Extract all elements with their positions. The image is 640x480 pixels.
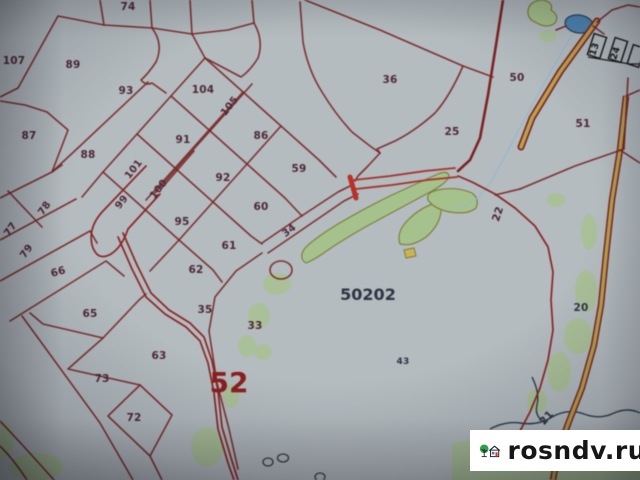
cadastral-map: 52 50202 7410789931041058687889159921011… <box>0 0 640 480</box>
parcel-label: 89 <box>65 59 80 71</box>
zone-code: 50202 <box>340 285 396 304</box>
parcel-label: 61 <box>221 240 236 252</box>
parcel-label: 73 <box>94 373 109 385</box>
parcel-label: 107 <box>3 55 26 67</box>
parcel-label: 66 <box>49 264 67 279</box>
parcel-label: 88 <box>80 149 95 161</box>
parcel-label: 79 <box>18 243 35 261</box>
cadastral-map-photo: 52 50202 7410789931041058687889159921011… <box>0 0 640 480</box>
watermark-text: rosndv.ru <box>508 436 640 465</box>
parcel-label: 86 <box>253 130 268 142</box>
parcel-label: 22 <box>490 205 506 223</box>
parcel-label: 20 <box>573 302 588 314</box>
parcel-label: 65 <box>82 308 97 320</box>
parcel-label: 78 <box>36 200 53 218</box>
parcel-label: 63 <box>151 350 166 362</box>
parcel-label: 33 <box>247 320 262 332</box>
parcel-label: 77 <box>2 221 19 239</box>
parcel-label: 36 <box>382 74 397 86</box>
watermark: rosndv.ru <box>470 430 640 471</box>
parcel-label: 62 <box>188 264 203 276</box>
parcel-label: 91 <box>175 134 190 146</box>
quarter-number: 52 <box>210 366 249 399</box>
parcel-label: 92 <box>215 172 230 184</box>
parcel-label: 43 <box>397 357 410 367</box>
parcel-label: 34 <box>280 222 298 239</box>
rosndv-logo-icon <box>479 434 502 468</box>
parcel-label: 74 <box>120 1 135 13</box>
parcel-label: 87 <box>21 130 36 142</box>
parcel-label: 100 <box>148 178 170 202</box>
parcel-labels-layer: 52 50202 7410789931041058687889159921011… <box>2 1 623 428</box>
parcel-label: 50 <box>509 72 524 84</box>
parcel-label: 60 <box>253 201 268 213</box>
stream <box>450 35 572 208</box>
parcel-label: 72 <box>126 412 141 424</box>
parcel-label: 104 <box>192 84 215 96</box>
parcel-label: 25 <box>444 126 459 138</box>
parcel-label: 51 <box>575 118 590 130</box>
parcel-label: 59 <box>291 163 306 175</box>
parcel-label: 95 <box>174 216 189 228</box>
parcel-label: 93 <box>118 85 133 97</box>
parcel-label: 99 <box>113 193 130 211</box>
parcel-label: 35 <box>197 304 212 316</box>
